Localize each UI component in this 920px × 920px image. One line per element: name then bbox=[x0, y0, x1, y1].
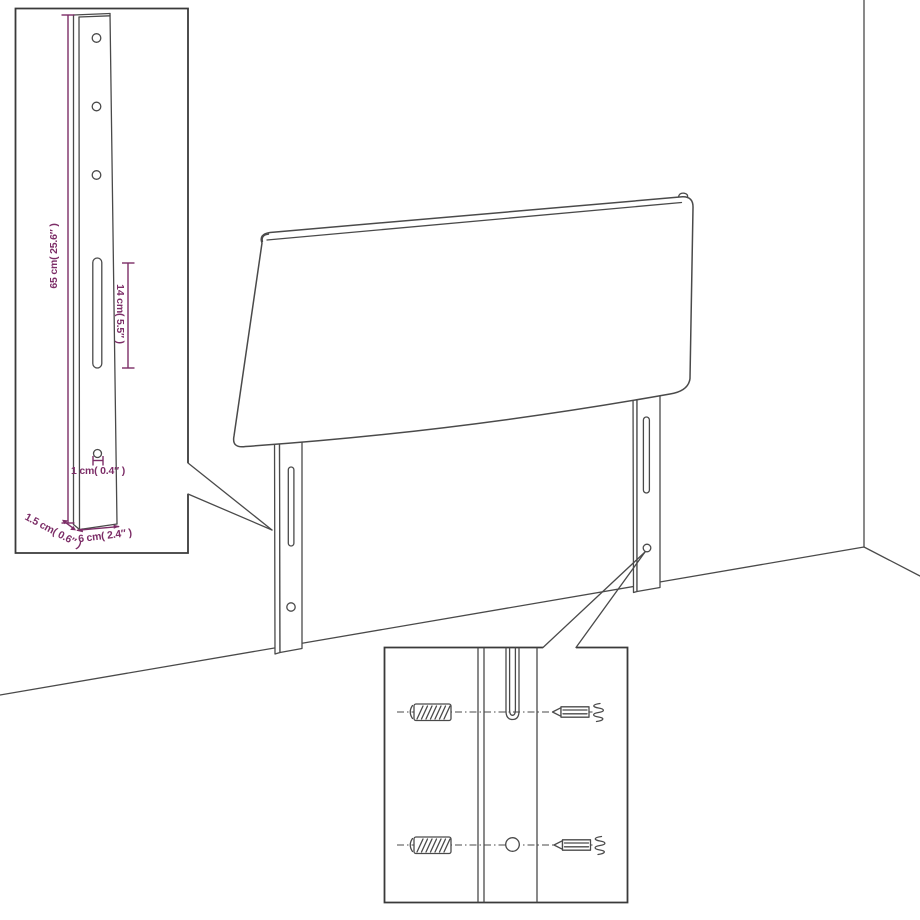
leg-left-front-face bbox=[280, 428, 303, 653]
diagram-canvas: 65 cm( 25.6″ ) 14 cm( 5.5″ ) 1 cm( 0.4″ … bbox=[0, 0, 920, 920]
headboard-panel bbox=[234, 193, 693, 447]
leg-cutouts bbox=[287, 417, 651, 611]
mounting-hole bbox=[506, 838, 520, 852]
wood-screw-icon bbox=[410, 704, 451, 721]
dimension-label-slot-length: 14 cm( 5.5″ ) bbox=[114, 284, 126, 344]
panel-outline bbox=[234, 197, 693, 447]
wood-screw-icon bbox=[410, 837, 451, 854]
dimension-label-leg-height: 65 cm( 25.6″ ) bbox=[48, 223, 60, 288]
dimension-label-hole-diameter: 1 cm( 0.4″ ) bbox=[71, 465, 125, 477]
floor-line-right bbox=[864, 547, 920, 576]
callout-wedge-left-leg bbox=[188, 463, 272, 530]
inset-box-mounting-detail bbox=[385, 648, 628, 903]
line-art bbox=[0, 0, 920, 920]
leg-right-front-face bbox=[637, 378, 660, 592]
